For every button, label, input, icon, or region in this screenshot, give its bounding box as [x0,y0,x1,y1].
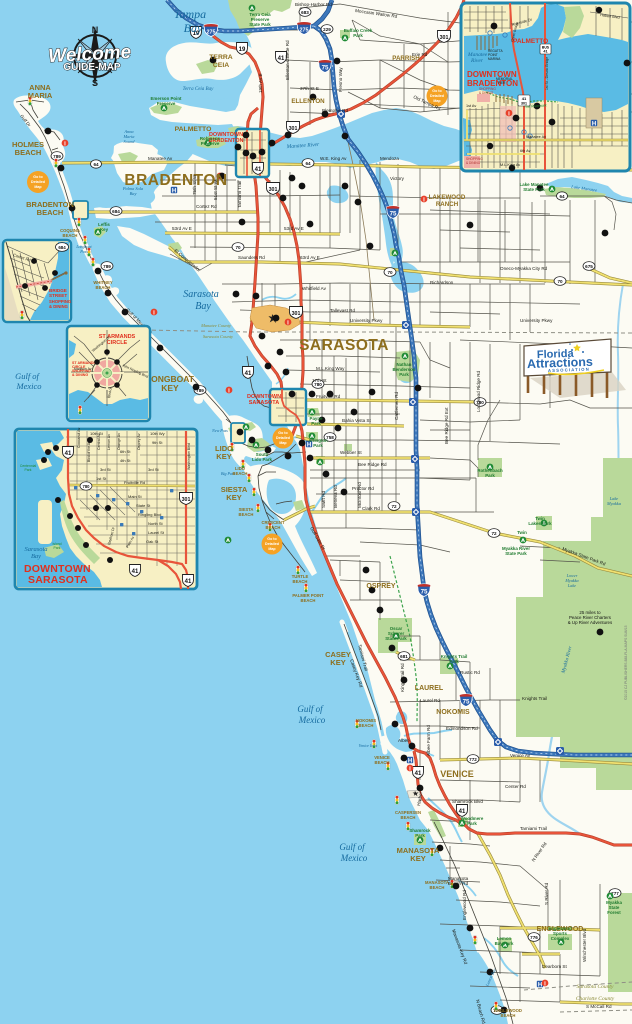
svg-text:NOKOMIS: NOKOMIS [436,709,470,716]
svg-text:Shamrock Blvd: Shamrock Blvd [452,799,483,804]
svg-text:RANCH: RANCH [436,201,459,208]
svg-text:Bay: Bay [195,301,211,312]
svg-text:772: 772 [469,757,477,762]
svg-text:Lakes Park: Lakes Park [528,521,552,526]
svg-text:CEIA: CEIA [213,62,229,69]
svg-text:4th St: 4th St [120,458,131,463]
svg-text:Venice Inlet: Venice Inlet [359,743,379,748]
svg-text:Central Av: Central Av [97,433,101,450]
svg-text:BEACH: BEACH [233,471,248,476]
svg-text:Swift Rd: Swift Rd [321,490,326,508]
svg-text:Proctor Rd: Proctor Rd [352,486,374,491]
svg-text:Complex: Complex [551,936,570,941]
svg-text:Sarasota County: Sarasota County [203,334,233,339]
svg-text:Madison Av: Madison Av [74,367,92,371]
svg-text:1st St - Desoto Bridge: 1st St - Desoto Bridge [545,57,549,90]
svg-text:Albee: Albee [398,738,410,743]
svg-text:Twin: Twin [517,530,527,535]
svg-text:S: S [92,78,98,88]
svg-text:McIntosh Rd: McIntosh Rd [357,482,362,508]
svg-text:Preserve: Preserve [201,141,220,146]
svg-text:TERRA: TERRA [209,54,233,61]
svg-text:Detailed: Detailed [276,436,290,440]
svg-text:17th St: 17th St [312,378,327,383]
svg-text:BEACH: BEACH [15,148,42,157]
svg-text:Map: Map [268,547,276,551]
svg-text:Tamiami Trail: Tamiami Trail [237,181,242,208]
svg-text:BEACH: BEACH [430,885,445,890]
svg-text:Mexico: Mexico [298,715,326,725]
svg-text:Cocoanut Av: Cocoanut Av [77,427,81,448]
svg-text:KEY: KEY [226,493,241,502]
svg-text:BEACH: BEACH [301,598,316,603]
svg-text:Sarasota: Sarasota [24,546,47,553]
svg-text:Go to: Go to [267,537,277,541]
svg-text:BEACH: BEACH [401,815,416,820]
svg-text:53rd Av E: 53rd Av E [172,226,192,231]
svg-text:Lemon Av: Lemon Av [107,434,111,450]
svg-text:Gulf of: Gulf of [297,704,324,714]
svg-text:683: 683 [301,10,309,15]
svg-text:Blemphis Rd: Blemphis Rd [322,108,348,113]
svg-text:72: 72 [491,531,497,536]
svg-text:1st Av: 1st Av [466,104,476,108]
svg-text:OSPREY: OSPREY [366,583,396,590]
svg-text:Sound: Sound [124,139,136,144]
svg-text:Go to: Go to [432,89,442,93]
svg-text:64: 64 [93,162,99,167]
svg-text:Park: Park [25,468,32,472]
svg-text:70: 70 [235,245,241,250]
svg-text:BEACH: BEACH [359,723,374,728]
svg-text:684: 684 [58,245,66,250]
svg-text:3rd St: 3rd St [148,467,160,472]
svg-text:Richardson: Richardson [430,280,454,285]
svg-text:Park: Park [399,372,409,377]
svg-text:41: 41 [522,96,527,101]
svg-text:Park: Park [54,546,61,550]
svg-text:675: 675 [585,264,593,269]
svg-text:63rd Av E: 63rd Av E [300,255,320,260]
svg-text:State St: State St [136,503,151,508]
svg-text:New Pass: New Pass [211,428,228,433]
svg-text:Webber St: Webber St [340,450,362,455]
svg-text:Bahia Vista St: Bahia Vista St [342,418,371,423]
svg-text:Fruitville Rd: Fruitville Rd [316,394,341,399]
svg-text:Venice Av: Venice Av [510,753,531,758]
svg-text:Forest: Forest [607,910,621,915]
svg-text:BEACH: BEACH [37,208,64,217]
svg-text:Lockwood Ridge Rd: Lockwood Ridge Rd [476,370,481,412]
svg-text:Bee Ridge Rd Ext: Bee Ridge Rd Ext [444,407,449,444]
svg-text:Park: Park [467,821,477,826]
svg-text:Laurel Rd: Laurel Rd [420,698,440,703]
svg-text:MARINA: MARINA [488,57,501,61]
svg-text:Kings Trail Rd: Kings Trail Rd [400,663,405,692]
svg-text:BEACH: BEACH [375,760,390,765]
svg-text:Gulf of: Gulf of [15,371,40,381]
svg-text:Pass: Pass [79,249,88,254]
svg-text:Park: Park [353,33,363,38]
svg-text:Sarasota: Sarasota [183,289,219,300]
svg-text:41: 41 [543,50,547,54]
svg-text:LAUREL: LAUREL [415,685,444,692]
svg-text:Laurel St: Laurel St [148,530,165,535]
svg-text:Terra Ceia Bay: Terra Ceia Bay [183,87,214,92]
svg-text:Osprey Av: Osprey Av [137,433,141,450]
svg-text:75th St W: 75th St W [192,174,197,195]
svg-text:Manatee Av: Manatee Av [148,156,173,161]
svg-text:Lido Park: Lido Park [252,457,273,462]
svg-text:Beneva Rd: Beneva Rd [333,485,338,508]
svg-text:Beach Rd: Beach Rd [448,881,469,886]
svg-text:3rd St: 3rd St [100,467,112,472]
svg-text:Mendoza: Mendoza [380,156,399,161]
svg-text:Manatee Av: Manatee Av [526,135,546,139]
svg-text:Bay: Bay [130,191,137,196]
svg-text:& DINING: & DINING [49,304,68,309]
svg-text:PALMETTO: PALMETTO [513,38,548,45]
svg-text:Lake: Lake [567,583,576,588]
svg-text:1st St: 1st St [96,476,107,481]
svg-text:BEACH: BEACH [293,579,308,584]
svg-text:64: 64 [559,194,565,199]
svg-text:BEACH: BEACH [96,285,111,290]
svg-text:Fresno Way: Fresno Way [338,67,343,92]
svg-text:Cattlemen Rd: Cattlemen Rd [394,391,399,420]
svg-text:Bee Ridge Rd: Bee Ridge Rd [358,462,387,467]
svg-text:Cortez Rd: Cortez Rd [196,204,217,209]
svg-text:W.E. King Av: W.E. King Av [320,156,347,161]
svg-text:Victory: Victory [390,176,405,181]
svg-text:State Park: State Park [505,551,527,556]
svg-text:Key: Key [100,227,109,232]
svg-text:University Pkwy: University Pkwy [350,318,383,323]
svg-text:53rd Av E: 53rd Av E [284,226,304,231]
svg-text:70: 70 [557,279,563,284]
svg-text:Preserve: Preserve [157,101,176,106]
svg-text:72: 72 [391,504,397,509]
svg-text:Bay: Bay [31,553,41,560]
svg-text:Detailed: Detailed [430,94,444,98]
svg-text:Go to: Go to [278,431,288,435]
svg-text:Main St: Main St [128,494,142,499]
svg-text:Park: Park [415,833,425,838]
svg-text:Rustic Rd: Rustic Rd [460,670,480,675]
svg-text:Park: Park [485,473,495,478]
svg-text:Go to: Go to [33,175,43,179]
svg-text:SARASOTA: SARASOTA [299,337,389,354]
svg-text:Winchester Blvd: Winchester Blvd [582,928,587,962]
svg-text:Map: Map [34,185,42,189]
svg-text:Edmondson Rd: Edmondson Rd [446,726,478,731]
svg-text:Park: Park [313,443,323,448]
svg-text:681: 681 [400,654,408,659]
svg-text:Park: Park [449,659,459,664]
svg-text:STREET: STREET [49,293,67,298]
svg-text:ELLENTON: ELLENTON [291,98,325,105]
svg-text:Washington Blvd: Washington Blvd [187,443,191,470]
svg-text:780: 780 [83,484,91,489]
svg-text:State Park: State Park [523,187,545,192]
svg-text:Manatee County: Manatee County [200,323,231,328]
svg-text:SARASOTA: SARASOTA [249,400,279,406]
svg-text:10th Wy: 10th Wy [150,431,165,436]
svg-text:KEY: KEY [330,658,345,667]
svg-text:GUIDE-MAP: GUIDE-MAP [63,62,121,73]
svg-text:BEACH: BEACH [266,525,281,530]
svg-text:S McCall Rd: S McCall Rd [586,1004,612,1009]
svg-text:Detailed: Detailed [265,542,279,546]
svg-text:& DINING: & DINING [466,161,481,165]
svg-text:State Park: State Park [249,22,271,27]
svg-text:MARIA: MARIA [28,91,53,100]
svg-text:S River Rd: S River Rd [544,882,549,905]
svg-text:Mexico: Mexico [15,381,41,391]
svg-text:BEACH: BEACH [63,233,78,238]
svg-text:North St: North St [148,521,164,526]
svg-text:Bay: Bay [184,21,203,35]
svg-text:Saunders Rd: Saunders Rd [238,255,265,260]
svg-text:BEACH: BEACH [239,512,254,517]
svg-text:Park: Park [311,421,321,426]
svg-text:KEY: KEY [161,383,179,393]
svg-text:KEY: KEY [410,854,425,863]
svg-text:19th Av E: 19th Av E [258,73,263,93]
svg-text:PIER: PIER [498,81,506,85]
svg-text:Bishop-Harbor Rd: Bishop-Harbor Rd [295,2,332,7]
svg-text:M.L.King Av: M.L.King Av [500,163,520,167]
svg-text:Englewood Rd: Englewood Rd [462,890,467,920]
svg-text:Detailed: Detailed [31,180,45,184]
svg-text:Mexico: Mexico [340,853,368,863]
svg-text:229: 229 [323,27,331,32]
svg-text:©2015 CJ PUBLISHERS 888-FLA-M: ©2015 CJ PUBLISHERS 888-FLA-MAPS SU6/15 [624,625,628,700]
svg-text:Dearborn St: Dearborn St [542,964,567,969]
svg-text:64: 64 [305,161,311,166]
svg-text:Map: Map [433,99,441,103]
svg-text:789: 789 [53,154,61,159]
svg-text:KEY: KEY [216,452,231,461]
svg-text:776: 776 [530,935,538,940]
svg-text:Myakka: Myakka [606,501,622,506]
svg-text:51st St W: 51st St W [213,179,218,200]
svg-text:684: 684 [112,209,120,214]
svg-text:6th Av: 6th Av [520,149,531,153]
svg-text:University Pkwy: University Pkwy [520,318,553,323]
svg-text:PALMETTO: PALMETTO [175,126,212,133]
svg-text:789: 789 [103,264,111,269]
svg-text:VENICE: VENICE [440,769,474,779]
svg-text:70: 70 [387,270,393,275]
svg-text:37th St E: 37th St E [300,86,319,91]
svg-text:Center Rd: Center Rd [505,784,526,789]
svg-text:6th St: 6th St [120,449,131,454]
svg-text:CIRCLE: CIRCLE [107,340,128,346]
svg-text:Albee Farm Rd: Albee Farm Rd [426,725,431,756]
svg-text:Tallevast Rd: Tallevast Rd [330,308,355,313]
svg-text:Bay Park: Bay Park [495,941,514,946]
svg-text:BEACH: BEACH [501,1013,516,1018]
svg-text:Oneco-Myakka City Rd: Oneco-Myakka City Rd [500,266,548,271]
svg-text:Erie Rd: Erie Rd [412,52,428,57]
svg-text:Map: Map [279,441,287,445]
svg-text:Gulf of: Gulf of [339,842,366,852]
svg-text:SARASOTA: SARASOTA [28,574,88,586]
svg-text:Oak St: Oak St [146,539,159,544]
svg-text:N: N [92,25,99,35]
svg-text:Ellenton-Gillette Rd: Ellenton-Gillette Rd [285,40,290,80]
svg-text:State Park: State Park [385,636,407,641]
svg-text:Orange Av: Orange Av [117,433,121,450]
svg-text:Tamiami Trail: Tamiami Trail [520,826,547,831]
svg-text:LAKEWOOD: LAKEWOOD [429,194,466,201]
svg-text:Knights Trail: Knights Trail [522,696,547,701]
svg-text:Fruitville Rd: Fruitville Rd [124,480,145,485]
svg-text:& Up River Adventures: & Up River Adventures [568,620,613,625]
svg-text:River: River [470,58,484,64]
svg-text:Sarasota County: Sarasota County [577,984,614,990]
svg-text:Tampa: Tampa [174,7,206,21]
svg-text:M.L.King Way: M.L.King Way [316,366,345,371]
svg-text:& DINING: & DINING [72,373,88,377]
svg-text:9th St: 9th St [152,440,163,445]
svg-text:& DINING: & DINING [479,91,494,95]
svg-text:Charlotte County: Charlotte County [576,996,615,1002]
svg-text:Whitfield Av: Whitfield Av [302,286,327,291]
svg-text:Clark Rd: Clark Rd [362,506,380,511]
